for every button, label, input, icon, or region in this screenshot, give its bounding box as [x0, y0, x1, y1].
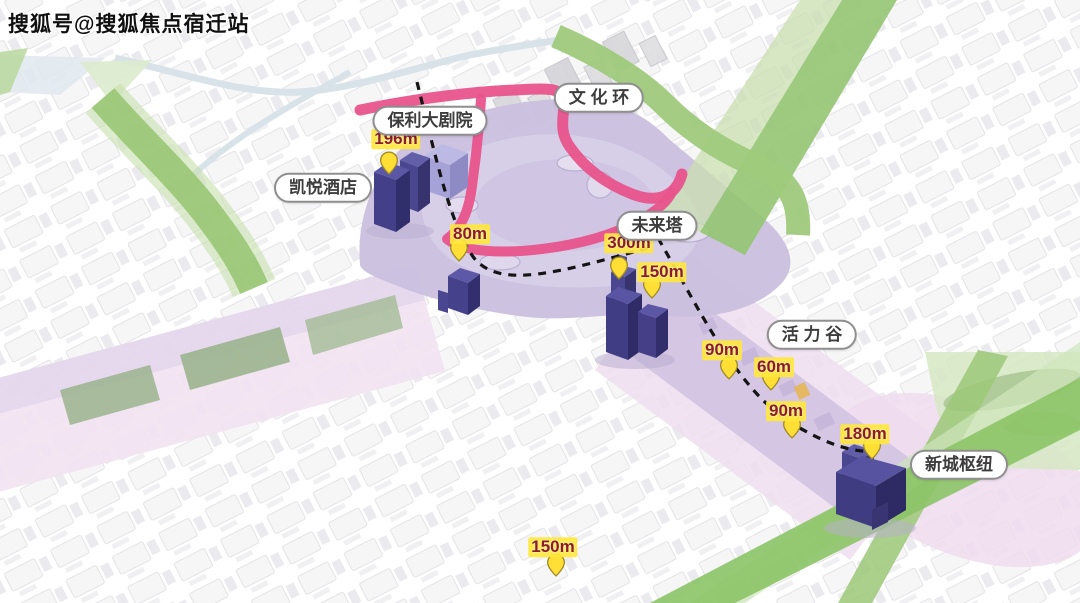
zone-label-vitality-valley: 活 力 谷	[767, 320, 857, 350]
zone-label-hyatt-hotel: 凯悦酒店	[274, 173, 372, 203]
urban-plan-map: 196m80m300m150m90m60m90m180m150m 保利大剧院凯悦…	[0, 0, 1080, 603]
zone-label-poly-grand-theatre: 保利大剧院	[373, 106, 488, 136]
zone-label-future-tower: 未来塔	[617, 211, 698, 241]
watermark: 搜狐号@搜狐焦点宿迁站	[8, 8, 249, 38]
zone-labels-layer: 保利大剧院凯悦酒店文 化 环未来塔活 力 谷新城枢纽	[0, 0, 1080, 603]
zone-label-new-town-hub: 新城枢纽	[910, 450, 1008, 480]
zone-label-culture-ring: 文 化 环	[554, 83, 644, 113]
